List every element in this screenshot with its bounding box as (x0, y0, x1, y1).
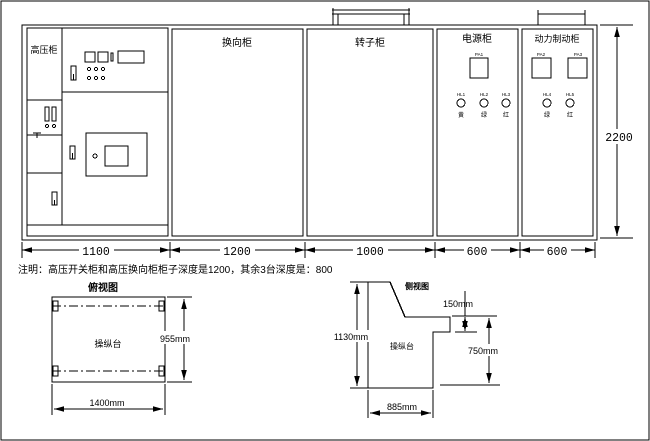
brake-lamp-char-2: 红 (567, 111, 573, 119)
engineering-drawing: 高压柜 (0, 0, 650, 441)
panel-button-1 (85, 52, 95, 62)
brake-lamp-2 (566, 99, 574, 107)
power-lamp-char-3: 红 (503, 111, 509, 119)
top-rail-rotor (332, 8, 410, 25)
dim-955mm: 955mm (160, 334, 190, 344)
top-view-label: 操纵台 (94, 338, 121, 349)
dim-750mm: 750mm (468, 346, 498, 356)
dim-1400mm: 1400mm (89, 398, 124, 408)
power-lamp-2 (480, 99, 488, 107)
dim-1200: 1200 (223, 246, 251, 259)
image-border (1, 1, 649, 440)
power-lamp-tag-1: HL1 (457, 92, 466, 97)
brake-cabinet-label: 动力制动柜 (534, 33, 579, 44)
side-view-title: 侧视图 (405, 281, 429, 291)
power-lamp-1 (457, 99, 465, 107)
dim-885mm: 885mm (387, 402, 417, 412)
top-rail-brake (538, 10, 585, 25)
power-meter (470, 58, 488, 78)
rotor-cabinet-label: 转子柜 (355, 36, 385, 49)
brake-meter-1 (532, 58, 551, 78)
power-lamp-char-1: 黄 (458, 111, 464, 119)
brake-cabinet: 动力制动柜 PA2 PA3 HL4 HL5 绿 红 (522, 29, 593, 236)
rotor-cabinet: 转子柜 (307, 29, 433, 236)
dim-600a: 600 (467, 246, 488, 259)
reversing-cabinet: 换向柜 (172, 29, 303, 236)
dim-600b: 600 (547, 246, 568, 259)
panel-button-2 (98, 52, 108, 62)
dim-1130mm: 1130mm (334, 332, 368, 342)
brake-lamp-tag-2: HL5 (566, 92, 575, 97)
side-view: 侧视图 操纵台 1130mm 150mm 750mm 885mm (334, 281, 501, 418)
panel-meter (118, 51, 144, 63)
power-cabinet-label: 电源柜 (462, 32, 492, 45)
hv-panel-components (71, 51, 144, 80)
brake-meter-2 (568, 58, 587, 78)
dim-150mm: 150mm (443, 299, 473, 309)
hv-left-column-components (33, 107, 57, 205)
hv-cabinet: 高压柜 (27, 28, 168, 236)
front-width-dimensions: 1100 1200 1000 600 600 (22, 242, 595, 259)
dim-2200: 2200 (605, 132, 633, 145)
power-meter-tag: PA1 (475, 52, 484, 57)
power-cabinet: 电源柜 PA1 HL1 HL2 HL3 黄 绿 红 (437, 29, 518, 236)
top-view: 俯视图 操纵台 955mm 1400mm (52, 281, 194, 415)
brake-lamp-1 (543, 99, 551, 107)
brake-meter-tag-2: PA3 (574, 52, 583, 57)
side-view-label: 操纵台 (390, 341, 414, 351)
brake-meter-tag-1: PA2 (537, 52, 546, 57)
drawing-svg: 高压柜 (0, 0, 650, 441)
brake-lamp-tag-1: HL4 (543, 92, 552, 97)
power-lamp-3 (502, 99, 510, 107)
power-lamp-tag-3: HL3 (502, 92, 511, 97)
brake-lamp-char-1: 绿 (544, 111, 550, 119)
top-view-title: 俯视图 (88, 281, 118, 294)
power-lamp-char-2: 绿 (481, 111, 487, 119)
reversing-cabinet-label: 换向柜 (222, 36, 252, 49)
hv-cabinet-label: 高压柜 (30, 44, 57, 55)
front-height-dimension: 2200 (599, 25, 640, 238)
note-text: 注明：高压开关柜和高压换向柜柜子深度是1200，其余3台深度是：800 (18, 263, 333, 276)
console-profile (368, 282, 450, 388)
power-lamp-tag-2: HL2 (480, 92, 489, 97)
front-view: 高压柜 (22, 8, 597, 240)
hv-window (70, 133, 147, 176)
dim-1000: 1000 (356, 246, 384, 259)
dim-1100: 1100 (82, 246, 110, 259)
